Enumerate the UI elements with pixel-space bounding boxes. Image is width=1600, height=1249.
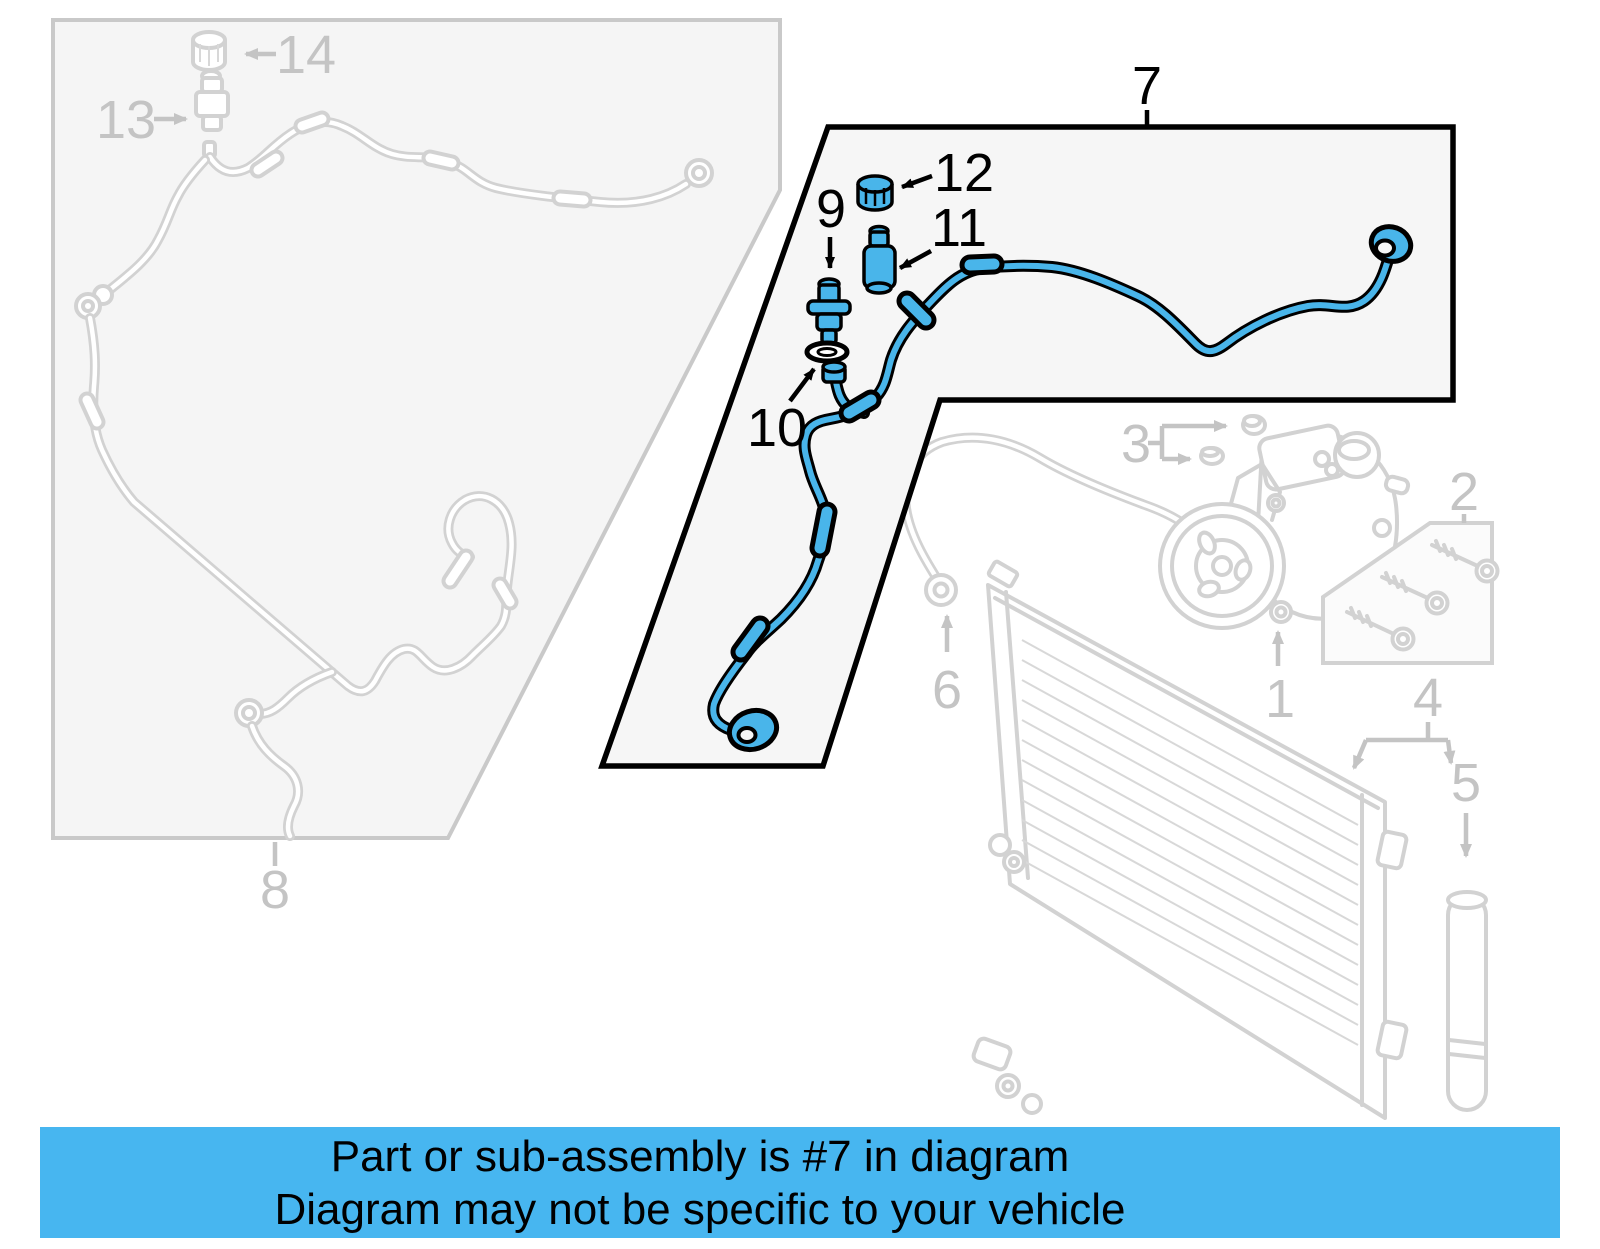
parts-diagram-stage: 13 14 8 xyxy=(0,0,1600,1249)
callout-7: 7 xyxy=(1132,56,1162,116)
cap-parts-3 xyxy=(1201,416,1265,464)
faded-left-assembly: 13 14 8 xyxy=(53,20,780,920)
callout-12: 12 xyxy=(934,143,994,203)
callout-14: 14 xyxy=(276,25,336,85)
valve-cap-12-part xyxy=(858,176,892,210)
valve-cap-14-part xyxy=(193,32,225,70)
callout-13: 13 xyxy=(96,90,156,150)
banner-line-2: Diagram may not be specific to your vehi… xyxy=(274,1183,1125,1236)
highlight-banner: Part or sub-assembly is #7 in diagram Di… xyxy=(40,1127,1560,1238)
banner-line-1: Part or sub-assembly is #7 in diagram xyxy=(331,1130,1070,1183)
callout-3: 3 xyxy=(1121,414,1151,474)
faded-right-assembly: 1 2 3 4 5 6 xyxy=(905,414,1497,1118)
callout-10: 10 xyxy=(747,398,807,458)
callout-1: 1 xyxy=(1265,669,1295,729)
receiver-drier-part xyxy=(1448,892,1486,1110)
callout-4: 4 xyxy=(1413,668,1443,728)
o-ring-10-part xyxy=(807,343,847,361)
callout-6: 6 xyxy=(932,660,962,720)
callout-9: 9 xyxy=(816,179,846,239)
callout-5: 5 xyxy=(1451,753,1481,813)
parts-diagram: 13 14 8 xyxy=(0,0,1600,1249)
callout-11: 11 xyxy=(931,198,987,258)
callout-2: 2 xyxy=(1449,462,1479,522)
callout-8: 8 xyxy=(260,860,290,920)
